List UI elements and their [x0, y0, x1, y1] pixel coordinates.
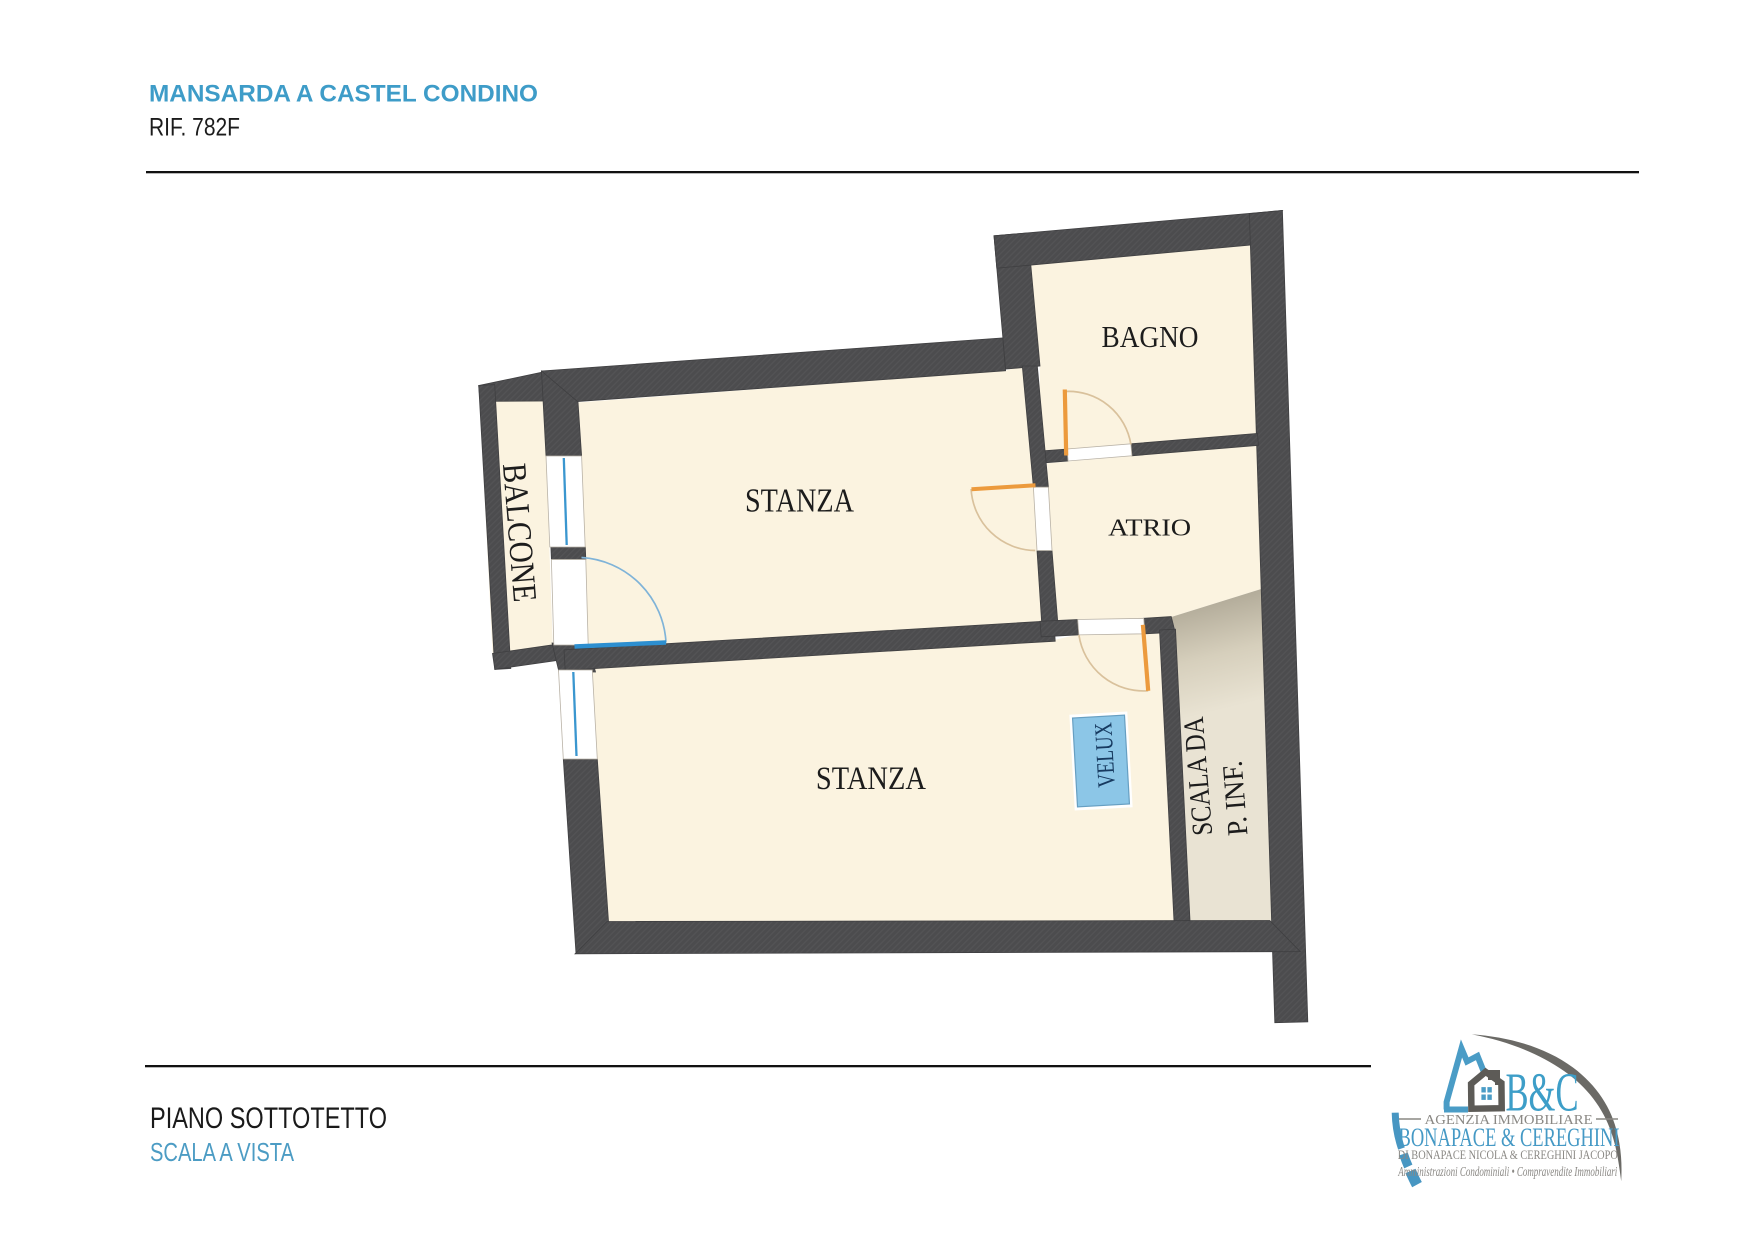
svg-text:DI BONAPACE NICOLA & CEREGHINI: DI BONAPACE NICOLA & CEREGHINI JACOPO [1398, 1148, 1618, 1162]
svg-text:P. INF.: P. INF. [1217, 760, 1255, 837]
svg-text:Amministrazioni Condominiali •: Amministrazioni Condominiali • Compraven… [1398, 1165, 1618, 1180]
svg-text:VELUX: VELUX [1090, 722, 1121, 788]
svg-text:SCALA A VISTA: SCALA A VISTA [150, 1139, 294, 1167]
svg-text:STANZA: STANZA [816, 761, 926, 797]
svg-text:MANSARDA A CASTEL CONDINO: MANSARDA A CASTEL CONDINO [149, 81, 538, 108]
svg-text:ATRIO: ATRIO [1108, 516, 1191, 542]
svg-text:STANZA: STANZA [745, 483, 854, 520]
svg-text:RIF. 782F: RIF. 782F [149, 114, 240, 142]
svg-text:PIANO SOTTOTETTO: PIANO SOTTOTETTO [150, 1102, 387, 1135]
svg-text:BAGNO: BAGNO [1102, 319, 1199, 354]
